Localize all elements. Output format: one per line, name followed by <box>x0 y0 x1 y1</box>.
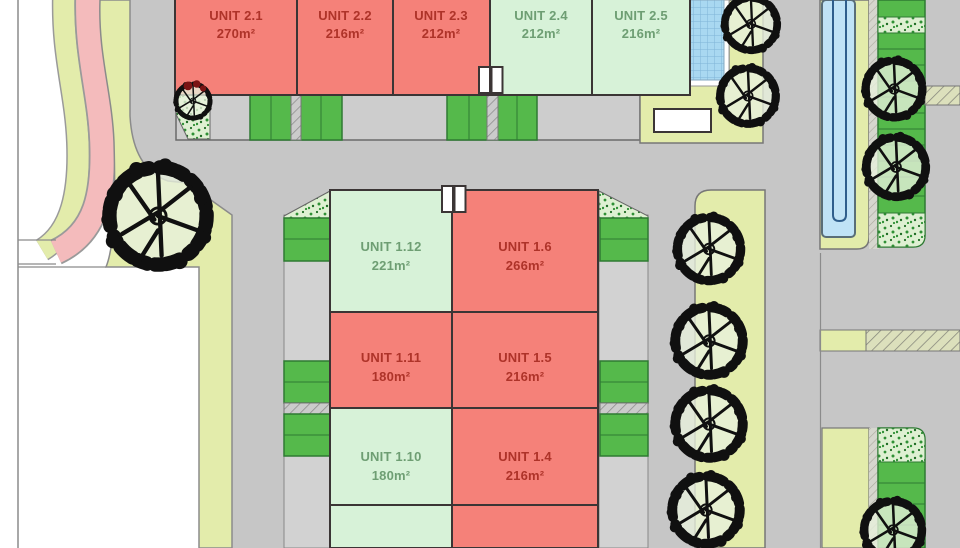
unit-label: UNIT 1.11 <box>361 350 421 365</box>
unit-area: 216m² <box>622 26 661 41</box>
unit-label: UNIT 2.4 <box>514 8 568 23</box>
attenuation-basin <box>822 0 855 237</box>
hatched-band <box>866 330 960 351</box>
unit-area: 212m² <box>422 26 461 41</box>
unit-area: 266m² <box>506 258 545 273</box>
planting-bed <box>878 17 925 33</box>
unit-label: UNIT 2.1 <box>209 8 263 23</box>
planting-bed <box>878 428 925 462</box>
site-plan: UNIT 2.1 270m² UNIT 2.2 216m² UNIT 2.3 2… <box>0 0 960 548</box>
parking-bays <box>878 0 925 247</box>
block1-west-strip <box>284 191 330 548</box>
unit-area: 216m² <box>326 26 365 41</box>
entrance-marker <box>492 67 503 93</box>
planting-bed <box>878 213 925 247</box>
unit-row4-left <box>330 505 452 548</box>
road-crossing-hatch <box>925 86 960 105</box>
unit-label: UNIT 2.2 <box>318 8 372 23</box>
unit-area: 270m² <box>217 26 256 41</box>
unit-area: 180m² <box>372 468 411 483</box>
hatched-bay <box>291 91 301 140</box>
hatched-bay <box>487 91 498 140</box>
entrance-marker <box>442 186 453 212</box>
unit-label: UNIT 2.5 <box>614 8 668 23</box>
unit-label: UNIT 1.12 <box>360 239 421 254</box>
unit-area: 212m² <box>522 26 561 41</box>
unit-label: UNIT 1.6 <box>498 239 552 254</box>
attenuation-area <box>820 0 869 249</box>
block1-east-strip <box>599 191 648 548</box>
site-plan-canvas: UNIT 2.1 270m² UNIT 2.2 216m² UNIT 2.3 2… <box>0 0 960 548</box>
unit-row4-right <box>452 505 598 548</box>
entrance-marker <box>455 186 466 212</box>
white-structure <box>654 109 711 132</box>
unit-area: 216m² <box>506 468 545 483</box>
unit-label: UNIT 1.10 <box>360 449 421 464</box>
pool <box>690 0 724 80</box>
unit-label: UNIT 1.4 <box>498 449 552 464</box>
unit-area: 221m² <box>372 258 411 273</box>
unit-area: 216m² <box>506 369 545 384</box>
block2-parking-row <box>176 91 640 140</box>
unit-area: 180m² <box>372 369 411 384</box>
hatched-bay <box>284 403 330 414</box>
entrance-marker <box>479 67 490 93</box>
parking-apron <box>176 91 640 140</box>
unit-label: UNIT 1.5 <box>498 350 552 365</box>
east-parking-bays <box>878 0 925 247</box>
hatched-bay <box>600 403 648 414</box>
unit-label: UNIT 2.3 <box>414 8 468 23</box>
